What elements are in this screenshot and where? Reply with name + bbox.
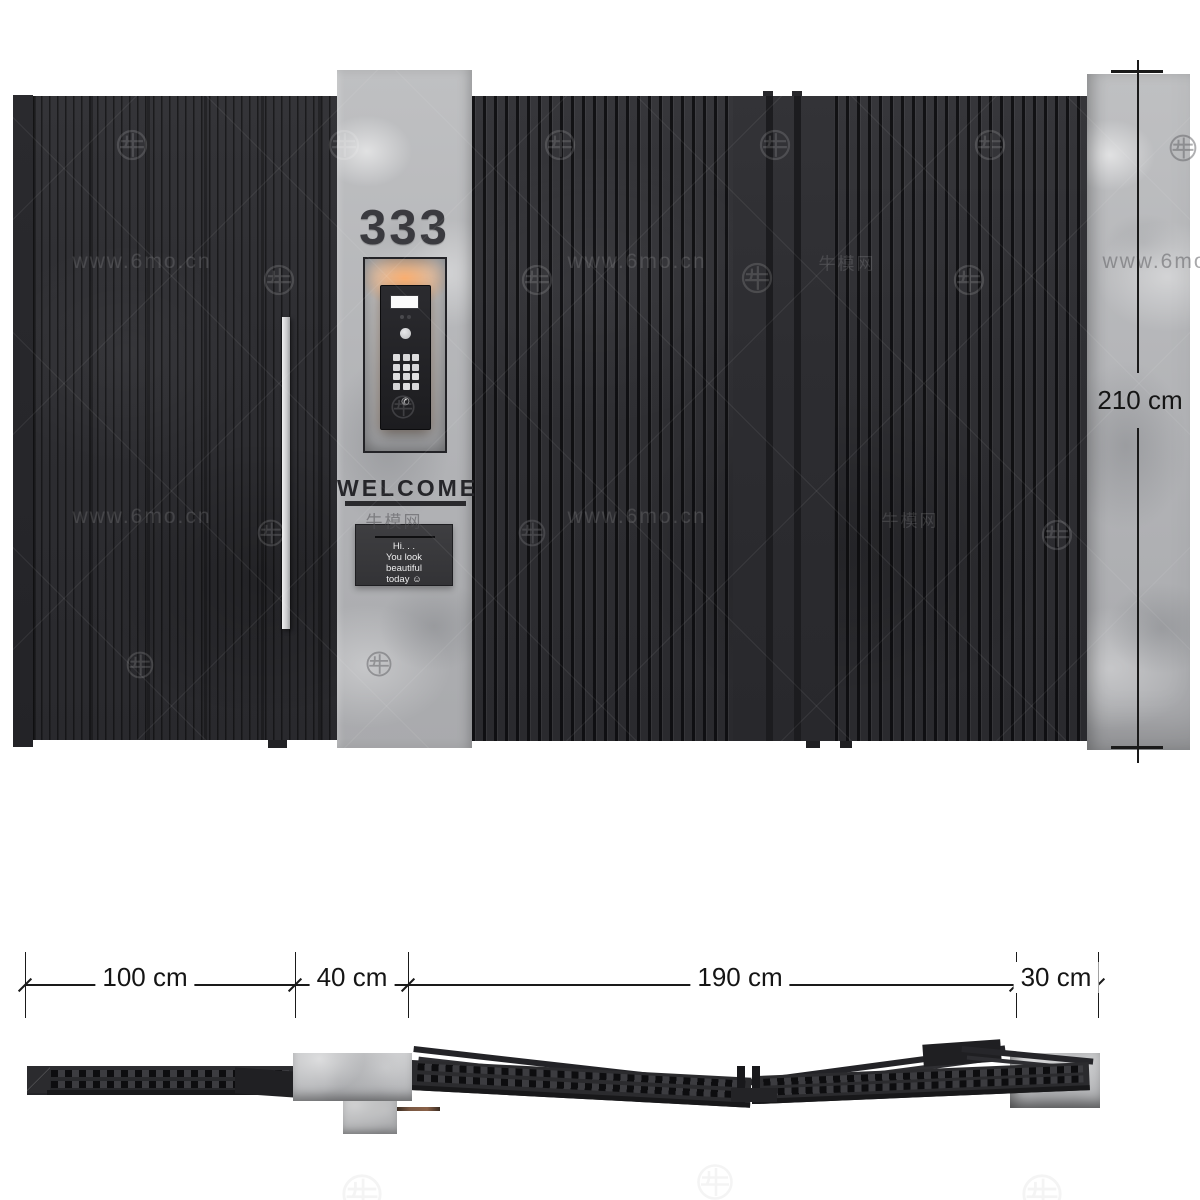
plan-pillar-base	[343, 1101, 397, 1134]
width-dim-label: 100 cm	[95, 962, 194, 993]
plan-hinge-junction	[735, 1066, 781, 1106]
width-dim-label: 30 cm	[1014, 962, 1099, 993]
height-dim-tick-bottom	[1111, 746, 1163, 749]
width-dim-label: 40 cm	[310, 962, 395, 993]
product-image: 333 ✆ WEL	[0, 0, 1200, 1200]
height-dim-line-bottom	[1137, 428, 1139, 763]
plan-view	[0, 1040, 1200, 1200]
plan-wall-endcap	[27, 1066, 50, 1093]
plan-center-pillar	[293, 1053, 412, 1101]
height-dim-label: 210 cm	[1097, 385, 1182, 416]
plan-junction-base	[731, 1088, 777, 1102]
width-dim-label: 190 cm	[690, 962, 789, 993]
height-dim-line-top	[1137, 60, 1139, 373]
width-dimension-strip: 100 cm 40 cm 190 cm 30 cm	[0, 930, 1200, 1040]
front-elevation: 333 ✆ WEL	[0, 0, 1200, 780]
height-dimension: 210 cm	[0, 0, 1200, 780]
plan-copper-trim	[397, 1107, 440, 1111]
height-dim-tick-top	[1111, 70, 1163, 73]
